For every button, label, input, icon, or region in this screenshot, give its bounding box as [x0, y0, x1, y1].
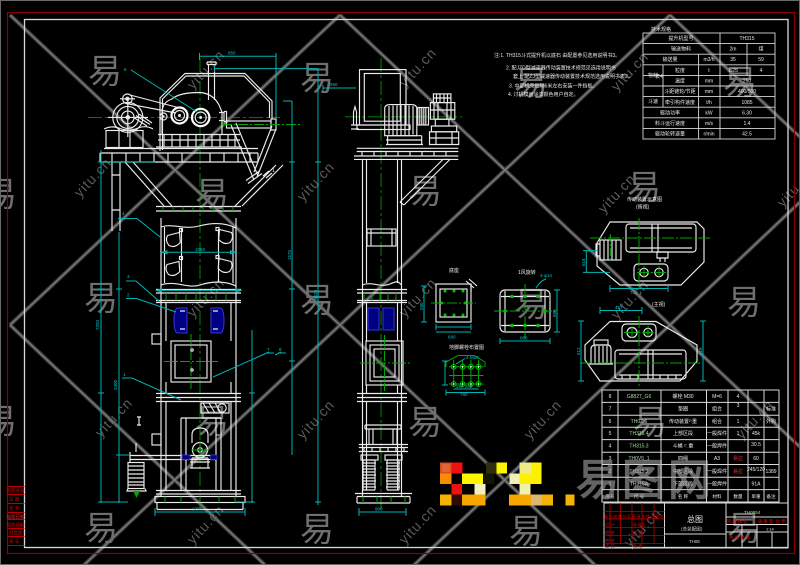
- svg-text:套上 配ZJ型减速器传动装置技术规范选用说明书表2。: 套上 配ZJ型减速器传动装置技术规范选用说明书表2。: [513, 73, 633, 80]
- svg-text:组合: 组合: [712, 406, 722, 413]
- svg-text:1.4: 1.4: [744, 121, 751, 127]
- svg-text:4-M20: 4-M20: [466, 355, 479, 360]
- svg-text:1700: 1700: [192, 507, 203, 512]
- svg-text:4: 4: [737, 394, 740, 400]
- svg-text:单重: 单重: [751, 493, 761, 500]
- svg-text:易: 易: [300, 60, 334, 98]
- svg-text:4-φ14: 4-φ14: [540, 273, 552, 278]
- svg-text:618: 618: [581, 258, 586, 266]
- svg-text:735: 735: [630, 290, 638, 295]
- svg-text:6: 6: [609, 419, 612, 425]
- svg-text:M=6: M=6: [712, 394, 722, 400]
- svg-text:易: 易: [408, 173, 442, 211]
- svg-text:标准化: 标准化: [633, 521, 646, 528]
- svg-text:共 张 第 张: 共 张 第 张: [729, 534, 751, 541]
- svg-text:TH0854: TH0854: [744, 510, 761, 515]
- svg-text:1风旋转: 1风旋转: [518, 269, 536, 276]
- svg-text:设 计: 设 计: [605, 521, 615, 528]
- svg-text:880: 880: [552, 309, 557, 317]
- svg-text:总图: 总图: [687, 514, 703, 524]
- svg-text:描图日期: 描图日期: [7, 514, 25, 521]
- svg-text:总 号: 总 号: [9, 538, 20, 545]
- svg-text:(俯视): (俯视): [636, 204, 650, 211]
- svg-text:垫圈: 垫圈: [678, 406, 688, 413]
- svg-text:35: 35: [730, 57, 736, 63]
- svg-text:传动装置示意图: 传动装置示意图: [627, 196, 662, 203]
- svg-text:G8827_G6: G8827_G6: [627, 394, 652, 400]
- svg-text:2m: 2m: [730, 47, 737, 53]
- svg-text:512: 512: [576, 347, 581, 355]
- svg-text:2300: 2300: [113, 379, 118, 390]
- svg-text:易: 易: [88, 53, 122, 91]
- svg-text:煤: 煤: [758, 46, 763, 53]
- svg-text:7250: 7250: [95, 319, 100, 330]
- svg-text:5: 5: [609, 431, 612, 437]
- svg-text:易拉: 易拉: [733, 468, 743, 475]
- svg-text:外购: 外购: [766, 418, 776, 425]
- svg-text:易: 易: [514, 286, 548, 324]
- svg-text:一般焊件: 一般焊件: [707, 430, 727, 437]
- svg-text:250: 250: [743, 78, 752, 84]
- svg-text:1:14: 1:14: [766, 527, 775, 532]
- svg-text:mm: mm: [705, 78, 713, 84]
- svg-text:上部区段: 上部区段: [673, 430, 693, 437]
- svg-text:42.5: 42.5: [742, 132, 752, 138]
- svg-text:提升机型号: 提升机型号: [668, 35, 693, 42]
- svg-text:易: 易: [727, 510, 761, 548]
- svg-text:物料: 物料: [648, 72, 658, 79]
- svg-text:91A: 91A: [752, 482, 762, 488]
- svg-text:TH315: TH315: [739, 36, 754, 42]
- svg-text:易拉: 易拉: [733, 455, 743, 462]
- svg-text:底图总号: 底图总号: [7, 487, 25, 494]
- svg-text:牵引构件速度: 牵引构件速度: [665, 99, 695, 106]
- svg-text:输送物料: 输送物料: [671, 46, 691, 53]
- svg-text:880: 880: [520, 336, 528, 341]
- svg-text:550: 550: [330, 82, 338, 87]
- svg-text:245/120: 245/120: [747, 467, 765, 473]
- svg-text:mm: mm: [705, 89, 713, 95]
- svg-text:易: 易: [0, 176, 17, 214]
- svg-text:1: 1: [737, 431, 740, 437]
- svg-text:A3: A3: [714, 456, 720, 462]
- svg-text:技术规格: 技术规格: [651, 26, 671, 33]
- svg-text:457: 457: [615, 305, 623, 310]
- svg-text:阶段标记 飞 锯重量 比例: 阶段标记 飞 锯重量 比例: [727, 518, 786, 525]
- svg-text:底座: 底座: [449, 267, 459, 274]
- svg-text:温度: 温度: [675, 77, 685, 84]
- svg-text:驱动功率: 驱动功率: [660, 109, 680, 116]
- svg-text:9620: 9620: [313, 289, 318, 300]
- svg-text:批 准: 批 准: [633, 543, 643, 550]
- svg-text:1.25: 1.25: [728, 68, 738, 74]
- svg-text:m/s: m/s: [705, 121, 714, 127]
- svg-text:2. 配JZD型减速器传动装置技术规范见选用说明书: 2. 配JZD型减速器传动装置技术规范见选用说明书: [506, 65, 616, 72]
- svg-text:标记处数分区更改文件号签名: 标记处数分区更改文件号签名: [604, 513, 664, 520]
- svg-text:易图网: 易图网: [576, 457, 714, 505]
- svg-text:组合: 组合: [712, 418, 722, 425]
- svg-text:780: 780: [460, 392, 468, 397]
- svg-text:易: 易: [0, 403, 17, 441]
- svg-text:3: 3: [737, 403, 740, 409]
- svg-text:30.5: 30.5: [751, 442, 761, 448]
- svg-text:60: 60: [753, 456, 759, 462]
- svg-text:TH315.4: TH315.4: [629, 431, 648, 437]
- svg-text:1085: 1085: [741, 100, 752, 106]
- svg-text:易: 易: [509, 513, 543, 551]
- svg-text:斗桶 ²: 重: 斗桶 ²: 重: [673, 443, 694, 450]
- svg-text:7: 7: [609, 407, 612, 413]
- svg-text:料斗运行速度: 料斗运行速度: [655, 120, 685, 127]
- svg-text:m3/h: m3/h: [703, 57, 714, 63]
- svg-text:kW: kW: [705, 110, 713, 116]
- svg-text:400/500: 400/500: [738, 89, 756, 95]
- svg-text:斗距链轮/节距: 斗距链轮/节距: [664, 88, 695, 95]
- svg-text:(总装配图): (总装配图): [681, 526, 703, 533]
- svg-text:易: 易: [727, 284, 761, 322]
- svg-text:1050: 1050: [195, 247, 206, 252]
- svg-text:签 字: 签 字: [9, 505, 20, 511]
- svg-text:TH0Z.6: TH0Z.6: [631, 419, 648, 425]
- svg-text:4: 4: [760, 68, 763, 74]
- svg-text:备注: 备注: [766, 493, 776, 500]
- svg-text:校 核: 校 核: [605, 529, 615, 536]
- svg-text:260 260: 260 260: [456, 384, 473, 389]
- svg-text:4: 4: [609, 444, 612, 450]
- svg-text:易: 易: [84, 510, 118, 548]
- svg-text:45k: 45k: [752, 431, 761, 437]
- svg-text:一般焊件: 一般焊件: [707, 443, 727, 450]
- svg-text:输送量: 输送量: [662, 56, 677, 63]
- svg-text:地脚螺栓布置图: 地脚螺栓布置图: [449, 344, 484, 351]
- svg-text:传动装置²:重: 传动装置²:重: [669, 418, 697, 425]
- svg-text:注:1. TH315斗式提升机以底石 由配置参见选用说明书3: 注:1. TH315斗式提升机以底石 由配置参见选用说明书3。: [494, 52, 620, 59]
- svg-text:900: 900: [375, 507, 383, 512]
- svg-text:数量: 数量: [733, 493, 743, 500]
- svg-text:易: 易: [300, 282, 334, 320]
- svg-text:4. 讨机模画涂漆颜色用户自定。: 4. 讨机模画涂漆颜色用户自定。: [508, 91, 579, 98]
- svg-text:1389: 1389: [765, 469, 776, 475]
- svg-text:t/h: t/h: [706, 100, 712, 106]
- svg-text:580: 580: [419, 302, 424, 310]
- svg-text:r/min: r/min: [703, 132, 714, 138]
- svg-text:螺栓 M30: 螺栓 M30: [672, 393, 693, 400]
- svg-text:旧底图: 旧底图: [9, 530, 23, 537]
- svg-text:6.30: 6.30: [742, 110, 752, 116]
- svg-text:标准: 标准: [766, 406, 776, 413]
- svg-text:680: 680: [448, 335, 456, 340]
- svg-text:8: 8: [609, 394, 612, 400]
- svg-text:粒度: 粒度: [675, 67, 685, 74]
- svg-text:审 定: 审 定: [633, 529, 643, 536]
- svg-text:850: 850: [228, 51, 236, 56]
- svg-text:易: 易: [408, 404, 442, 442]
- svg-text:1575: 1575: [287, 249, 292, 260]
- svg-text:TH315.3: TH315.3: [629, 444, 648, 450]
- svg-text:描校日期: 描校日期: [7, 522, 25, 529]
- svg-text:易: 易: [300, 511, 334, 549]
- svg-text:(主视): (主视): [652, 301, 666, 308]
- svg-text:3. 中部机壳每隔6米左右安装一件挡板。: 3. 中部机壳每隔6米左右安装一件挡板。: [509, 83, 597, 90]
- svg-text:618: 618: [698, 347, 703, 355]
- svg-text:TH08: TH08: [689, 539, 700, 544]
- svg-text:1: 1: [737, 419, 740, 425]
- svg-text:59: 59: [758, 57, 764, 63]
- svg-text:斗速: 斗速: [648, 99, 658, 105]
- svg-text:工 艺: 工 艺: [605, 544, 615, 549]
- svg-text:驱动轮转速量: 驱动轮转速量: [655, 131, 685, 138]
